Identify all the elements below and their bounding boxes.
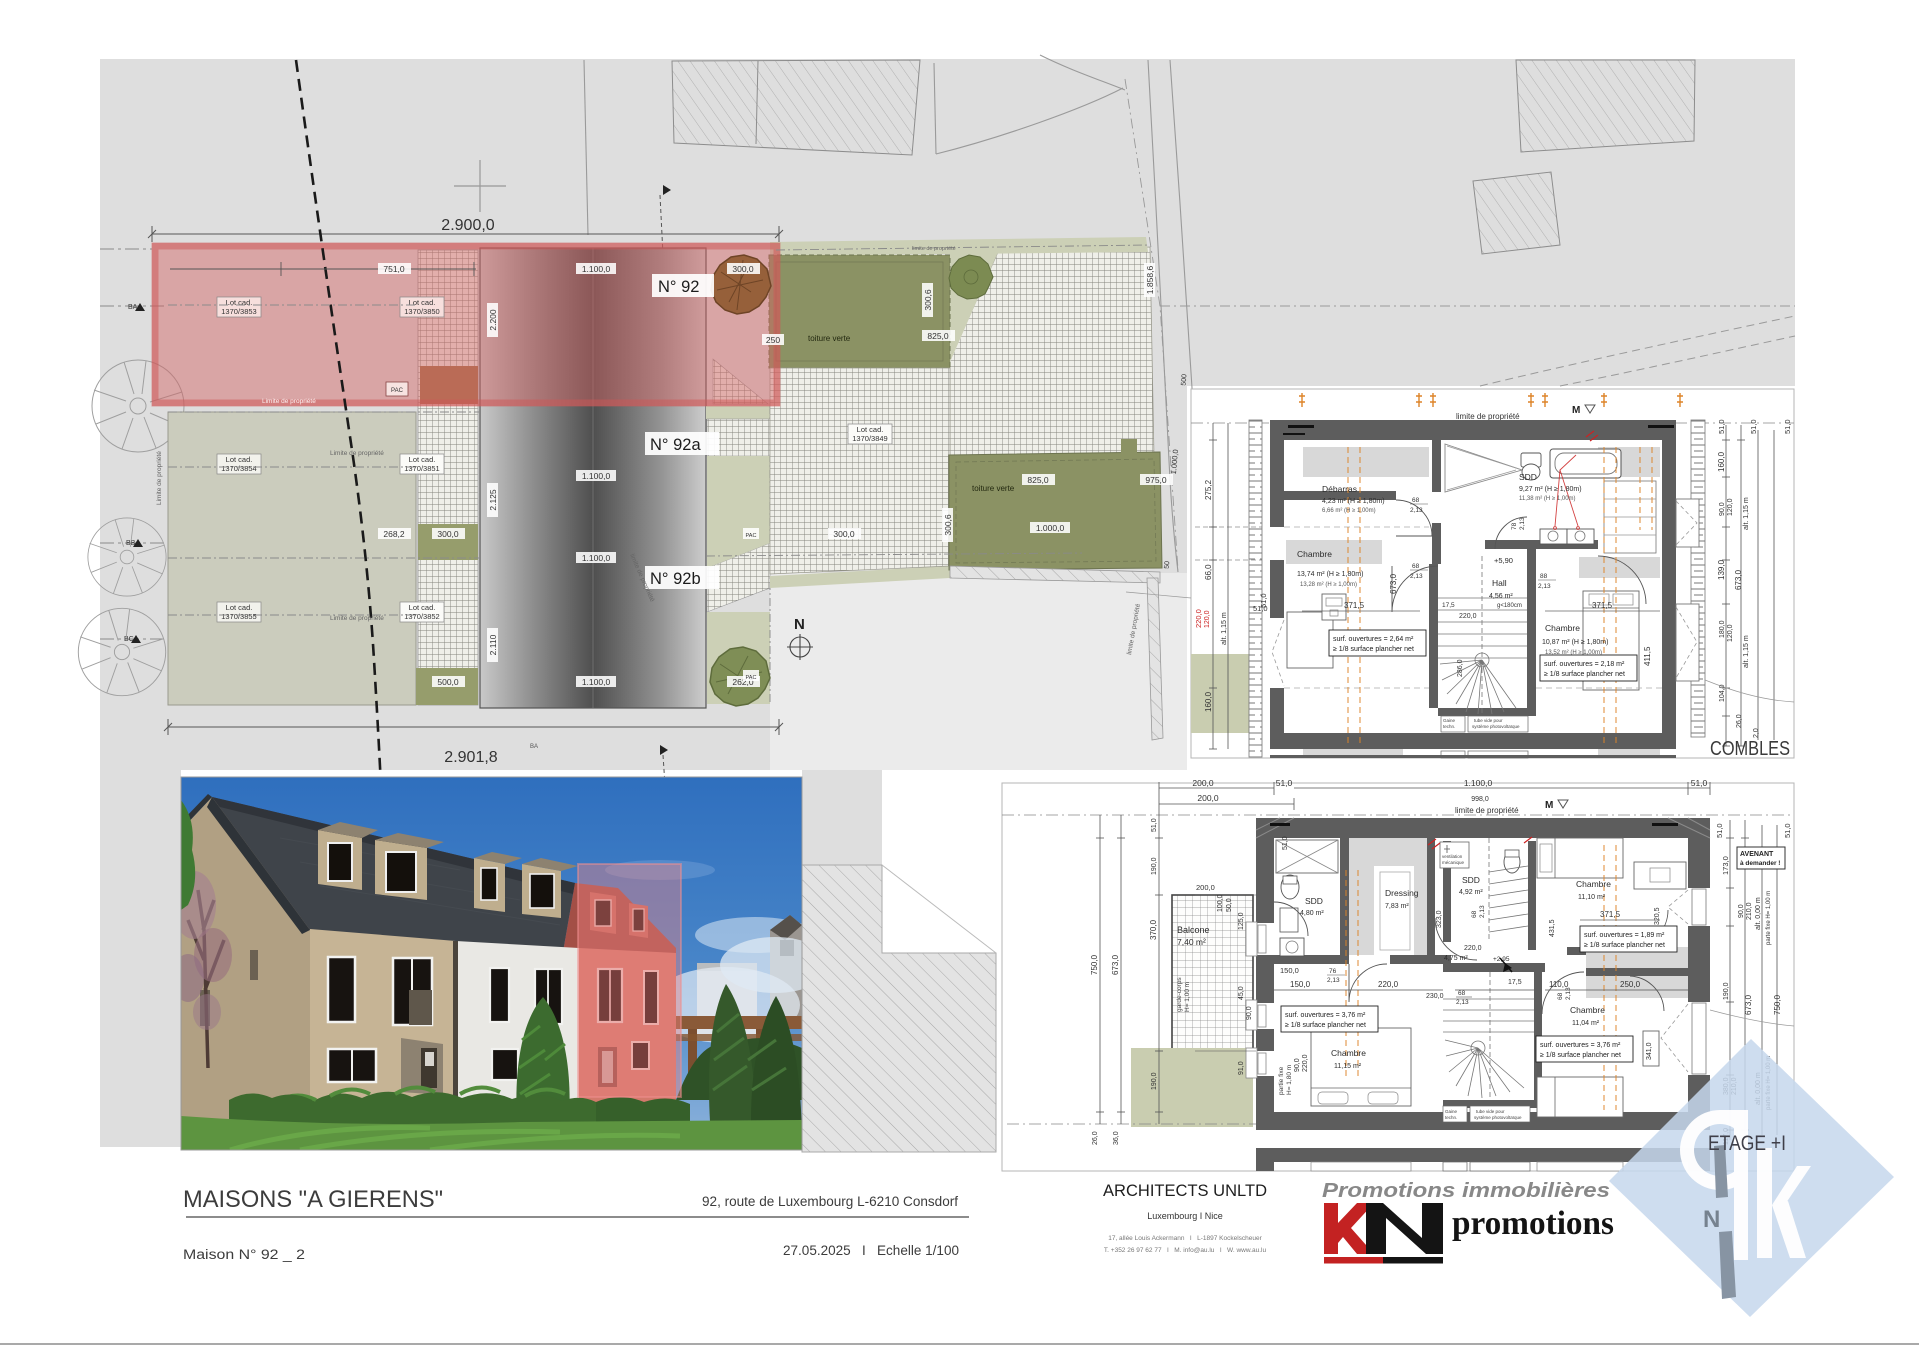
svg-text:220,0: 220,0 xyxy=(1464,945,1482,952)
svg-text:751,0: 751,0 xyxy=(383,264,405,274)
svg-text:limite de propriété: limite de propriété xyxy=(912,246,956,252)
svg-text:88: 88 xyxy=(1540,573,1548,580)
svg-text:Lot cad.: Lot cad. xyxy=(409,455,436,464)
svg-text:alt. 1,15 m: alt. 1,15 m xyxy=(1221,612,1228,645)
svg-text:Chambre: Chambre xyxy=(1570,1005,1605,1015)
svg-text:2,13: 2,13 xyxy=(1456,999,1469,1006)
svg-text:PAC: PAC xyxy=(391,388,404,394)
svg-text:371,5: 371,5 xyxy=(1600,910,1621,919)
svg-text:Lot cad.: Lot cad. xyxy=(226,455,253,464)
svg-text:371,5: 371,5 xyxy=(1344,601,1365,610)
svg-text:9,27 m² (H ≥ 1,80m): 9,27 m² (H ≥ 1,80m) xyxy=(1519,486,1582,493)
svg-text:2.200: 2.200 xyxy=(488,309,498,331)
svg-text:ARCHITECTS UNLTD: ARCHITECTS UNLTD xyxy=(1103,1181,1267,1200)
svg-text:2,13: 2,13 xyxy=(1519,517,1526,530)
svg-text:26,0: 26,0 xyxy=(1092,1131,1099,1145)
svg-text:4,92 m²: 4,92 m² xyxy=(1459,889,1483,896)
svg-text:SDD: SDD xyxy=(1305,896,1323,906)
svg-text:371,5: 371,5 xyxy=(1592,601,1613,610)
svg-text:BA: BA xyxy=(530,744,538,750)
svg-text:51,0: 51,0 xyxy=(1783,823,1792,838)
svg-text:11,15 m²: 11,15 m² xyxy=(1334,1063,1362,1070)
svg-text:11,38 m² (H ≥ 1,00m): 11,38 m² (H ≥ 1,00m) xyxy=(1519,496,1576,502)
svg-text:300,6: 300,6 xyxy=(923,289,933,311)
svg-text:N: N xyxy=(1703,1206,1720,1233)
svg-text:90,0: 90,0 xyxy=(1246,1006,1253,1020)
svg-text:1.100,0: 1.100,0 xyxy=(582,471,611,481)
svg-text:300,0: 300,0 xyxy=(437,529,459,539)
svg-text:alt. 1,15 m: alt. 1,15 m xyxy=(1743,497,1750,530)
svg-text:300,0: 300,0 xyxy=(833,529,855,539)
svg-text:N° 92a: N° 92a xyxy=(650,436,701,454)
svg-text:51,0: 51,0 xyxy=(1151,818,1158,832)
svg-text:1370/3851: 1370/3851 xyxy=(404,464,439,473)
svg-text:125,0: 125,0 xyxy=(1238,912,1245,930)
svg-text:1.000,0: 1.000,0 xyxy=(1036,523,1065,533)
svg-text:250: 250 xyxy=(766,335,780,345)
svg-text:220,0: 220,0 xyxy=(1378,980,1399,989)
svg-text:Gaine: Gaine xyxy=(1445,1109,1458,1114)
svg-text:2,13: 2,13 xyxy=(1410,507,1423,514)
svg-text:2,13: 2,13 xyxy=(1538,583,1551,590)
svg-text:160,0: 160,0 xyxy=(1204,691,1213,712)
svg-text:limite de propriété: limite de propriété xyxy=(1456,412,1520,421)
svg-text:surf. ouvertures = 2,18 m²: surf. ouvertures = 2,18 m² xyxy=(1544,661,1625,668)
svg-text:toiture verte: toiture verte xyxy=(808,334,851,343)
svg-text:2,13: 2,13 xyxy=(1479,905,1486,918)
svg-text:104,0: 104,0 xyxy=(1719,684,1726,702)
svg-text:51,0: 51,0 xyxy=(1717,419,1726,434)
svg-text:51,0: 51,0 xyxy=(1282,836,1289,850)
svg-text:surf. ouvertures = 3,76 m²: surf. ouvertures = 3,76 m² xyxy=(1540,1042,1621,1049)
svg-text:139,0: 139,0 xyxy=(1717,559,1726,580)
svg-text:M: M xyxy=(1545,800,1553,811)
svg-text:système photovoltaïque: système photovoltaïque xyxy=(1474,1115,1522,1120)
svg-text:50: 50 xyxy=(1164,561,1172,569)
svg-text:1370/3852: 1370/3852 xyxy=(404,612,439,621)
svg-text:150,0: 150,0 xyxy=(1290,980,1311,989)
svg-text:180,0: 180,0 xyxy=(1719,620,1726,638)
svg-text:51,0: 51,0 xyxy=(1691,778,1708,788)
svg-text:51,0: 51,0 xyxy=(1276,778,1293,788)
svg-text:partie fixe: partie fixe xyxy=(1278,1066,1285,1095)
svg-text:7,40 m²: 7,40 m² xyxy=(1177,937,1206,947)
svg-text:1.100,0: 1.100,0 xyxy=(582,264,611,274)
svg-text:≥ 1/8 surface plancher net: ≥ 1/8 surface plancher net xyxy=(1285,1022,1366,1029)
svg-text:370,0: 370,0 xyxy=(1149,919,1158,940)
svg-text:268,2: 268,2 xyxy=(383,529,405,539)
svg-text:250,0: 250,0 xyxy=(1620,980,1641,989)
svg-text:68: 68 xyxy=(1458,990,1466,997)
svg-text:200,0: 200,0 xyxy=(1192,778,1214,788)
svg-text:H= 1,00 m: H= 1,00 m xyxy=(1184,982,1191,1012)
svg-text:173,0: 173,0 xyxy=(1721,856,1730,875)
svg-text:1370/3850: 1370/3850 xyxy=(404,307,439,316)
svg-text:Chambre: Chambre xyxy=(1297,549,1332,559)
svg-text:+2,95: +2,95 xyxy=(1493,956,1510,963)
svg-text:320,5: 320,5 xyxy=(1654,907,1661,925)
svg-text:68: 68 xyxy=(1412,563,1420,570)
svg-text:g<180cm: g<180cm xyxy=(1497,603,1522,609)
svg-text:998,0: 998,0 xyxy=(1471,796,1489,803)
svg-text:210,0: 210,0 xyxy=(1746,902,1753,920)
svg-text:190,0: 190,0 xyxy=(1723,982,1730,1000)
svg-text:4,75 m²: 4,75 m² xyxy=(1444,955,1468,962)
svg-text:Maison N° 92 _ 2: Maison N° 92 _ 2 xyxy=(183,1247,305,1262)
svg-text:220,0: 220,0 xyxy=(1302,1054,1309,1072)
svg-text:Promotions immobilières: Promotions immobilières xyxy=(1322,1179,1610,1202)
svg-text:90,0: 90,0 xyxy=(1719,502,1726,516)
svg-text:17, allée Louis Ackermann I: 17, allée Louis Ackermann I L-1897 Kocke… xyxy=(1108,1235,1262,1242)
svg-text:120,0: 120,0 xyxy=(1727,624,1734,642)
svg-text:ETAGE +I: ETAGE +I xyxy=(1708,1132,1786,1155)
svg-text:alt. 1,15 m: alt. 1,15 m xyxy=(1743,635,1750,668)
svg-text:2,0: 2,0 xyxy=(1753,728,1760,738)
svg-text:Gaine: Gaine xyxy=(1443,718,1456,723)
svg-text:Hall: Hall xyxy=(1492,578,1507,588)
svg-text:mécanique: mécanique xyxy=(1442,860,1465,865)
svg-text:1370/3855: 1370/3855 xyxy=(221,612,256,621)
svg-text:11,04 m²: 11,04 m² xyxy=(1572,1020,1600,1027)
svg-text:Chambre: Chambre xyxy=(1545,623,1580,633)
svg-text:90,0: 90,0 xyxy=(1294,1058,1301,1072)
svg-text:Lot cad.: Lot cad. xyxy=(226,298,253,307)
svg-text:7,83 m²: 7,83 m² xyxy=(1385,903,1409,910)
svg-text:323,0: 323,0 xyxy=(1436,910,1443,928)
svg-text:système photovoltaïque: système photovoltaïque xyxy=(1472,724,1520,729)
svg-text:50,0: 50,0 xyxy=(1226,898,1233,912)
svg-text:Limite de propriété: Limite de propriété xyxy=(262,398,316,405)
svg-text:78: 78 xyxy=(1511,522,1518,530)
svg-text:825,0: 825,0 xyxy=(1027,475,1049,485)
svg-text:2.900,0: 2.900,0 xyxy=(441,217,494,234)
svg-text:Lot cad.: Lot cad. xyxy=(226,603,253,612)
svg-text:1.100,0: 1.100,0 xyxy=(1464,778,1493,788)
svg-text:2,13: 2,13 xyxy=(1565,987,1572,1000)
svg-text:825,0: 825,0 xyxy=(927,331,949,341)
svg-text:27.05.2025 I Echelle 1/100: 27.05.2025 I Echelle 1/100 xyxy=(783,1243,959,1258)
svg-text:36,0: 36,0 xyxy=(1113,1131,1120,1145)
svg-text:220,0: 220,0 xyxy=(1194,609,1203,628)
svg-text:300,0: 300,0 xyxy=(732,264,754,274)
svg-text:parte fixe H= 1,00 m: parte fixe H= 1,00 m xyxy=(1766,891,1772,945)
svg-text:200,0: 200,0 xyxy=(1197,793,1219,803)
svg-text:2.901,8: 2.901,8 xyxy=(444,749,497,766)
svg-text:≥ 1/8 surface plancher net: ≥ 1/8 surface plancher net xyxy=(1540,1052,1621,1059)
svg-text:411,5: 411,5 xyxy=(1643,646,1652,666)
svg-text:Lot cad.: Lot cad. xyxy=(857,425,884,434)
svg-text:45,0: 45,0 xyxy=(1238,986,1245,1000)
svg-text:750,0: 750,0 xyxy=(1773,994,1782,1015)
svg-text:2,13: 2,13 xyxy=(1327,977,1340,984)
svg-text:68: 68 xyxy=(1412,497,1420,504)
svg-text:92, route de Luxembourg L-6210: 92, route de Luxembourg L-6210 Consdorf xyxy=(702,1194,958,1209)
svg-text:275,2: 275,2 xyxy=(1204,479,1213,500)
svg-text:76: 76 xyxy=(1329,968,1337,975)
svg-text:2,13: 2,13 xyxy=(1410,573,1423,580)
svg-text:1.100,0: 1.100,0 xyxy=(582,553,611,563)
svg-text:SDD: SDD xyxy=(1519,472,1537,482)
svg-text:673,0: 673,0 xyxy=(1111,954,1120,975)
svg-text:Chambre: Chambre xyxy=(1331,1048,1366,1058)
svg-text:toiture verte: toiture verte xyxy=(972,484,1015,493)
svg-text:11,10 m²: 11,10 m² xyxy=(1578,894,1606,901)
svg-text:286,0: 286,0 xyxy=(1457,659,1464,677)
svg-text:garde-corps: garde-corps xyxy=(1176,977,1183,1012)
svg-text:13,28 m² (H ≥ 1,00m): 13,28 m² (H ≥ 1,00m) xyxy=(1300,582,1357,588)
svg-text:+5,90: +5,90 xyxy=(1494,556,1513,565)
svg-text:promotions: promotions xyxy=(1452,1205,1614,1242)
svg-text:COMBLES: COMBLES xyxy=(1710,738,1790,760)
svg-text:≥ 1/8 surface plancher net: ≥ 1/8 surface plancher net xyxy=(1584,942,1665,949)
svg-text:2.125: 2.125 xyxy=(488,489,498,511)
svg-text:ventilation: ventilation xyxy=(1442,854,1463,859)
svg-text:≥ 1/8 surface plancher net: ≥ 1/8 surface plancher net xyxy=(1333,646,1414,653)
svg-text:alt. 0,00 m: alt. 0,00 m xyxy=(1755,897,1762,930)
svg-text:190,0: 190,0 xyxy=(1151,1072,1158,1090)
svg-text:500,0: 500,0 xyxy=(437,677,459,687)
svg-text:160,0: 160,0 xyxy=(1717,451,1726,472)
svg-text:Limite de propriété: Limite de propriété xyxy=(330,615,384,622)
svg-text:341,0: 341,0 xyxy=(1646,1042,1653,1060)
svg-text:2.110: 2.110 xyxy=(488,634,498,655)
svg-text:17,5: 17,5 xyxy=(1508,979,1522,986)
svg-text:Limite de propriété: Limite de propriété xyxy=(156,451,163,505)
svg-text:à demander !: à demander ! xyxy=(1740,860,1780,867)
svg-text:tube vide pour: tube vide pour xyxy=(1476,1109,1505,1114)
svg-text:90,0: 90,0 xyxy=(1738,904,1745,918)
svg-text:17,5: 17,5 xyxy=(1442,602,1455,609)
svg-text:230,0: 230,0 xyxy=(1426,993,1444,1000)
svg-text:673,0: 673,0 xyxy=(1744,994,1753,1015)
svg-text:51,0: 51,0 xyxy=(1259,593,1268,608)
svg-text:10,87 m² (H ≥ 1,80m): 10,87 m² (H ≥ 1,80m) xyxy=(1542,639,1608,646)
svg-text:13,74 m² (H ≥ 1,80m): 13,74 m² (H ≥ 1,80m) xyxy=(1297,571,1363,578)
svg-text:N° 92: N° 92 xyxy=(658,278,699,296)
svg-text:190,0: 190,0 xyxy=(1151,857,1158,875)
svg-text:Lot cad.: Lot cad. xyxy=(409,603,436,612)
svg-text:AVENANT: AVENANT xyxy=(1740,851,1774,858)
svg-text:≥ 1/8 surface plancher net: ≥ 1/8 surface plancher net xyxy=(1544,671,1625,678)
svg-text:T. +352 26 97 62 77 I M. i: T. +352 26 97 62 77 I M. info@au.lu I W.… xyxy=(1104,1247,1267,1254)
svg-text:1370/3849: 1370/3849 xyxy=(852,434,887,443)
svg-text:100,0: 100,0 xyxy=(1217,894,1224,912)
svg-text:51,0: 51,0 xyxy=(1749,419,1758,434)
svg-text:673,0: 673,0 xyxy=(1389,573,1398,594)
svg-text:surf. ouvertures = 1,89 m²: surf. ouvertures = 1,89 m² xyxy=(1584,932,1665,939)
svg-text:PAC: PAC xyxy=(746,675,757,681)
svg-text:1.858,6: 1.858,6 xyxy=(1145,266,1155,295)
svg-text:4,23 m² (H ≥ 1,80m): 4,23 m² (H ≥ 1,80m) xyxy=(1322,498,1385,505)
svg-text:techn.: techn. xyxy=(1443,724,1455,729)
svg-text:500: 500 xyxy=(1181,374,1189,386)
svg-text:220,0: 220,0 xyxy=(1459,613,1477,620)
svg-text:68: 68 xyxy=(1471,910,1478,918)
svg-text:431,5: 431,5 xyxy=(1549,919,1556,937)
svg-text:26,0: 26,0 xyxy=(1736,714,1743,728)
svg-text:Dressing: Dressing xyxy=(1385,888,1419,898)
svg-text:SDD: SDD xyxy=(1462,875,1480,885)
svg-text:6,66 m² (H ≥ 1,00m): 6,66 m² (H ≥ 1,00m) xyxy=(1322,508,1376,514)
svg-text:1370/3853: 1370/3853 xyxy=(221,307,256,316)
svg-text:673,0: 673,0 xyxy=(1734,569,1743,590)
svg-text:Luxembourg I Nice: Luxembourg I Nice xyxy=(1147,1211,1223,1221)
svg-text:120,0: 120,0 xyxy=(1204,610,1211,628)
svg-text:Chambre: Chambre xyxy=(1576,879,1611,889)
svg-text:68: 68 xyxy=(1557,992,1564,1000)
svg-text:1.100,0: 1.100,0 xyxy=(582,677,611,687)
svg-text:PAC: PAC xyxy=(746,533,757,539)
svg-text:N: N xyxy=(794,616,805,633)
svg-text:4,80 m²: 4,80 m² xyxy=(1300,910,1324,917)
svg-text:150,0: 150,0 xyxy=(1280,966,1299,975)
svg-text:120,0: 120,0 xyxy=(1727,498,1734,516)
svg-text:M: M xyxy=(1572,405,1580,416)
svg-text:Débarras: Débarras xyxy=(1322,484,1357,494)
svg-text:MAISONS "A GIERENS": MAISONS "A GIERENS" xyxy=(183,1186,443,1213)
svg-text:Balcone: Balcone xyxy=(1177,925,1210,935)
svg-text:techn.: techn. xyxy=(1445,1115,1457,1120)
svg-text:limite de propriété: limite de propriété xyxy=(1455,806,1519,815)
svg-text:Limite de propriété: Limite de propriété xyxy=(330,450,384,457)
svg-text:H= 1,80 m: H= 1,80 m xyxy=(1286,1065,1293,1095)
svg-text:975,0: 975,0 xyxy=(1145,475,1167,485)
svg-text:750,0: 750,0 xyxy=(1090,954,1099,975)
svg-text:200,0: 200,0 xyxy=(1196,883,1215,892)
svg-text:surf. ouvertures = 2,64 m²: surf. ouvertures = 2,64 m² xyxy=(1333,636,1414,643)
svg-text:surf. ouvertures = 3,76 m²: surf. ouvertures = 3,76 m² xyxy=(1285,1012,1366,1019)
svg-text:1370/3854: 1370/3854 xyxy=(221,464,256,473)
svg-text:66,0: 66,0 xyxy=(1204,564,1213,580)
svg-text:Lot cad.: Lot cad. xyxy=(409,298,436,307)
svg-text:51,0: 51,0 xyxy=(1783,419,1792,434)
svg-text:91,0: 91,0 xyxy=(1238,1061,1245,1075)
svg-text:51,0: 51,0 xyxy=(1715,823,1724,838)
svg-text:N° 92b: N° 92b xyxy=(650,570,701,588)
svg-text:4,56 m²: 4,56 m² xyxy=(1489,593,1513,600)
svg-text:tube vide pour: tube vide pour xyxy=(1474,718,1503,723)
svg-text:300,6: 300,6 xyxy=(943,514,953,536)
